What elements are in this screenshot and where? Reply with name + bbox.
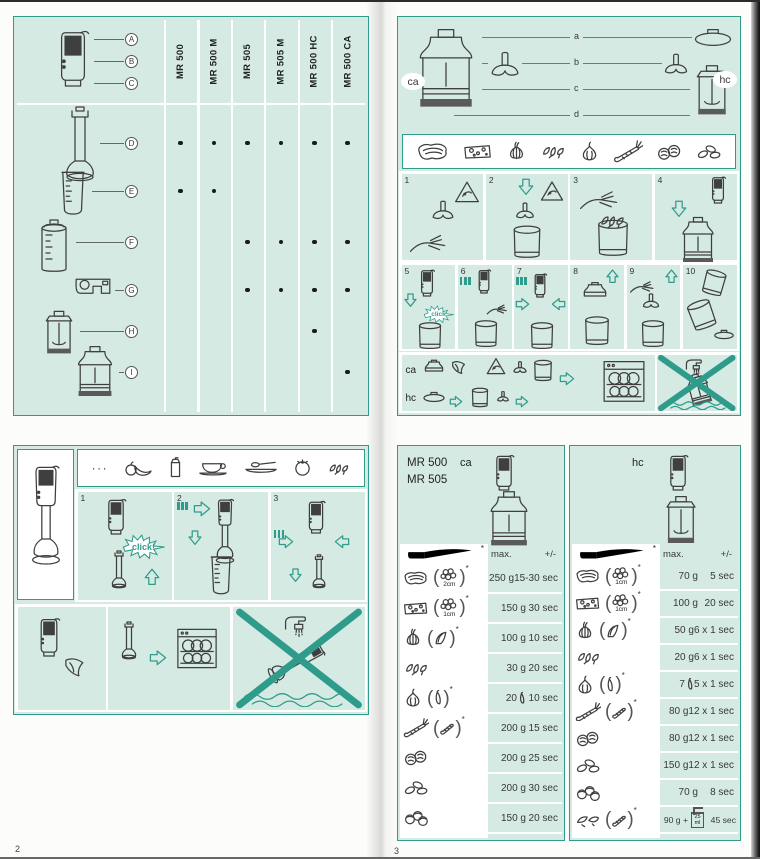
- processing-table-hc: hc * max. +/- (1cm)*70 g5 sec(1cm)*100 g…: [569, 445, 741, 841]
- compatibility-dot: [245, 240, 250, 245]
- cheese-icon: [463, 142, 493, 161]
- arrow-icon: [515, 395, 528, 407]
- table-header-row: * max. +/-: [400, 544, 562, 564]
- amount-value: 150 g: [488, 813, 526, 824]
- prep-hint: (1cm)*: [605, 594, 641, 613]
- compatibility-dot: [345, 240, 350, 245]
- garlic-icon: [575, 675, 595, 695]
- model-name: MR 500: [175, 43, 186, 78]
- part-label-F: F: [125, 236, 138, 249]
- prep-body: [439, 720, 455, 736]
- model-header-mr-505: MR 505: [231, 23, 264, 99]
- arrow-icon: [671, 200, 687, 218]
- assembly-step-4: 4: [655, 174, 737, 260]
- prohibited-cross-icon: [233, 607, 365, 710]
- ca-attachment-label: ca: [401, 73, 425, 90]
- click-callout: click: [422, 305, 456, 324]
- callout-line: [94, 83, 124, 84]
- time-value: 20 sec: [698, 598, 738, 609]
- assembly-steps-row-2: 5 click 6 7 8 9 10: [399, 262, 739, 351]
- callout-line: [94, 39, 124, 40]
- manual-spread: MR 500MR 500 MMR 505MR 505 MMR 500 HCMR …: [0, 0, 760, 859]
- clove-icon: [433, 690, 443, 706]
- hazelnuts-icon: [403, 809, 429, 826]
- prep-body: 1cm: [611, 567, 631, 586]
- blade-icon: [662, 53, 690, 76]
- arrow-icon: [149, 649, 167, 665]
- blade-icon: [488, 51, 522, 79]
- cubes-icon: [611, 594, 631, 607]
- compatibility-panel: MR 500MR 500 MMR 505MR 505 MMR 500 HCMR …: [13, 16, 369, 416]
- food-cell: [572, 780, 660, 805]
- table-row: ()*2010 sec: [400, 684, 562, 714]
- callout-line: [80, 331, 124, 332]
- onion-icon: [403, 628, 423, 648]
- value-cell: 150 g30 sec: [488, 594, 562, 622]
- cleaning-row: ca hc: [399, 352, 739, 413]
- part-line-c: c: [454, 89, 692, 90]
- amount-text: 20: [506, 693, 517, 704]
- assembly-panel: a b c d ca hc 1 2 3 4 5 click 6 7 8 9 10: [397, 16, 741, 416]
- value-cell: 100 g20 sec: [660, 591, 738, 616]
- compatibility-dot: [345, 370, 350, 375]
- part-label-H: H: [125, 325, 138, 338]
- part-label-D: D: [125, 137, 138, 150]
- tomato-icon: [293, 459, 312, 476]
- blender-foods-strip: ···: [77, 449, 365, 487]
- amount-value: 90 g +25ml: [660, 812, 706, 828]
- amount-text: 20 g: [675, 652, 694, 663]
- asterisk: *: [634, 698, 637, 707]
- time-value: 20 sec: [526, 663, 562, 674]
- amount-value: 50 g: [656, 625, 694, 636]
- amount-value: 100 g: [660, 598, 698, 609]
- onion-icon: [575, 621, 595, 641]
- assembly-step-2: 2: [486, 174, 568, 260]
- amount-value: 200 g: [488, 723, 526, 734]
- garlic-icon: [403, 688, 423, 708]
- value-cell: 70 g5 sec: [660, 564, 738, 589]
- asterisk: *: [450, 685, 453, 694]
- prep-body: [433, 690, 443, 706]
- amount-text: 200 g: [501, 783, 526, 794]
- compatibility-dot: [245, 288, 250, 293]
- bowl-icon: [510, 224, 544, 261]
- part-label-G: G: [125, 284, 138, 297]
- carrot-cut-icon: [439, 720, 455, 736]
- time-value: 5 sec: [698, 571, 738, 582]
- bowl-icon: [532, 359, 554, 383]
- arrow-icon: [449, 395, 462, 407]
- value-cell: 90 g +25ml45 sec: [660, 807, 738, 832]
- time-value: 20 sec: [526, 813, 562, 824]
- time-value: 25 sec: [526, 753, 562, 764]
- model-header-mr-500-m: MR 500 M: [197, 23, 230, 99]
- callout-line: [92, 191, 124, 192]
- part-label-I: I: [125, 366, 138, 379]
- prep-body: 1cm: [439, 598, 459, 617]
- walnuts-icon: [403, 749, 429, 766]
- time-value: 15-30 sec: [514, 573, 562, 584]
- walnuts-icon: [575, 730, 601, 747]
- step-number: 9: [630, 266, 635, 276]
- blade-icon: [430, 200, 456, 222]
- blade-icon: [641, 293, 661, 310]
- motor-icon: [305, 500, 327, 535]
- prep-hint: (1cm)*: [433, 598, 469, 617]
- amount-value: 150 g: [650, 760, 688, 771]
- beaker-icon: [206, 554, 236, 596]
- click-label: click: [422, 305, 456, 324]
- clove-icon: [605, 677, 615, 693]
- tolerance-header: +/-: [530, 549, 562, 560]
- arrow-icon: [404, 293, 417, 307]
- prep-body: [611, 704, 627, 720]
- table-row: 150 g20 sec: [400, 804, 562, 834]
- prep-hint: ()*: [427, 629, 459, 648]
- chopper-ca-icon: [410, 27, 482, 114]
- amount-text: 150 g: [663, 760, 688, 771]
- prep-body: 2cm: [439, 568, 459, 587]
- motor-icon: [666, 454, 690, 492]
- tolerance-header: +/-: [702, 549, 738, 560]
- food-cell: ()*: [400, 684, 488, 712]
- assembly-step-10: 10: [683, 265, 737, 349]
- value-cell: 2010 sec: [488, 684, 562, 712]
- part-line-d: d: [454, 115, 692, 116]
- time-value: 5 x 1 sec: [694, 679, 738, 690]
- assembly-step-5: 5 click: [402, 265, 456, 349]
- part-label-E: E: [125, 185, 138, 198]
- bowl-icon: [698, 266, 730, 300]
- bowl-icon: [416, 321, 444, 351]
- value-cell: 50 g6 x 1 sec: [656, 618, 738, 643]
- compatibility-dot: [312, 141, 317, 146]
- asterisk: *: [456, 625, 459, 634]
- asterisk: *: [466, 564, 469, 573]
- compatibility-dot: [279, 141, 284, 146]
- time-value: 12 x 1 sec: [688, 733, 738, 744]
- blender-cleaning-row: [15, 604, 367, 712]
- carrot-cut-icon: [611, 812, 627, 828]
- prep-hint: (1cm)*: [605, 567, 641, 586]
- asterisk: *: [638, 590, 641, 599]
- compatibility-dot: [345, 288, 350, 293]
- amount-text: 250 g: [489, 573, 514, 584]
- shaft-icon: [311, 554, 327, 590]
- processing-table-ca: MR 500 MR 505 ca * max. +/- (2cm)*250 g1…: [397, 445, 565, 841]
- value-cell: 80 g12 x 1 sec: [650, 699, 738, 724]
- motor-icon: [418, 269, 436, 298]
- hc-rows: (1cm)*70 g5 sec(1cm)*100 g20 sec()*50 g6…: [572, 564, 738, 834]
- cubes-icon: [611, 567, 631, 580]
- model-name: MR 505 M: [275, 38, 286, 84]
- food-cell: ()*: [572, 699, 650, 724]
- motor-icon: [532, 273, 548, 299]
- prep-size-label: 1cm: [443, 611, 455, 618]
- cloth-icon: [62, 655, 88, 678]
- step-number: 5: [405, 266, 410, 276]
- click-callout: click!: [120, 534, 168, 560]
- hand-icon: [578, 184, 620, 212]
- food-cell: (1cm)*: [572, 591, 660, 616]
- food-cell: ()*: [572, 618, 656, 643]
- amount-text: 80 g: [669, 706, 688, 717]
- food-cell: [400, 744, 488, 772]
- value-cell: 150 g20 sec: [488, 804, 562, 832]
- lid-flat-icon: [692, 27, 734, 48]
- usage-step-3: 3: [271, 492, 365, 600]
- quarter-icon: [605, 623, 621, 639]
- speed-marks: [177, 502, 188, 510]
- model-name: MR 500 HC: [309, 35, 320, 87]
- speed-marks: [516, 277, 527, 285]
- fruit-icon: [123, 458, 153, 478]
- beaker-icon: [56, 169, 90, 217]
- hc-column-label: hc: [632, 457, 644, 469]
- food-cell: ()*: [572, 807, 660, 832]
- asterisk: *: [466, 594, 469, 603]
- hc-attachment-label: hc: [713, 71, 737, 88]
- amount-text: 150 g: [501, 603, 526, 614]
- hc-label: hc: [406, 393, 417, 404]
- carrot-icon: [403, 718, 429, 738]
- ellipsis: ···: [92, 461, 109, 475]
- time-value: 12 x 1 sec: [688, 760, 738, 771]
- step-number: 4: [658, 175, 663, 185]
- asterisk: *: [462, 715, 465, 724]
- herbs-icon: [540, 143, 566, 160]
- time-value: 12 x 1 sec: [688, 706, 738, 717]
- motor-icon: [104, 498, 128, 536]
- prep-body: [433, 630, 449, 646]
- page-edge: [751, 2, 760, 857]
- step-number: 3: [573, 175, 578, 185]
- step-number: 3: [274, 493, 279, 503]
- carrot-icon: [613, 140, 643, 163]
- herbs-icon: [327, 461, 350, 476]
- step-number: 1: [405, 175, 410, 185]
- food-cell: (2cm)*: [400, 564, 476, 592]
- compatibility-dot: [279, 240, 284, 245]
- no-rinse-warning: [233, 607, 365, 710]
- asterisk: *: [622, 671, 625, 680]
- table-row: 70 g8 sec: [572, 780, 738, 807]
- meat-icon: [575, 568, 601, 584]
- compatibility-dot: [178, 189, 183, 194]
- food-cell: ()*: [400, 714, 488, 742]
- value-cell: 75 x 1 sec: [656, 672, 738, 697]
- assembly-step-8: 8: [570, 265, 624, 349]
- table-row: 20 g6 x 1 sec: [572, 645, 738, 672]
- amount-text: 100 g: [673, 598, 698, 609]
- step-number: 8: [573, 266, 578, 276]
- value-cell: 200 g25 sec: [488, 744, 562, 772]
- part-letter-d: d: [570, 109, 583, 119]
- amount-text: 90 g +: [664, 815, 688, 825]
- bowl-icon: [594, 218, 632, 259]
- amount-text: 7: [679, 679, 685, 690]
- carrot-icon: [575, 702, 601, 722]
- table-row: ()*200 g15 sec: [400, 714, 562, 744]
- carrot-cut-icon: [611, 704, 627, 720]
- page-fold: [366, 2, 398, 857]
- warning-icon: [486, 357, 506, 375]
- table-row: (1cm)*100 g20 sec: [572, 591, 738, 618]
- cheese-icon: [575, 595, 601, 611]
- arrow-icon: [188, 530, 202, 545]
- food-cell: [572, 753, 650, 778]
- value-cell: 30 g20 sec: [488, 654, 562, 682]
- amount-value: 100 g: [488, 633, 526, 644]
- amount-text: 150 g: [501, 813, 526, 824]
- prep-hint: ()*: [427, 689, 453, 708]
- prep-body: [605, 677, 615, 693]
- part-label-A: A: [125, 33, 138, 46]
- ca-rows: (2cm)*250 g15-30 sec(1cm)*150 g30 sec()*…: [400, 564, 562, 834]
- max-header: max.: [660, 549, 702, 560]
- prep-hint: ()*: [605, 810, 637, 829]
- step-number: 10: [686, 266, 695, 276]
- asterisk: *: [653, 543, 656, 553]
- callout-line: [115, 290, 124, 291]
- callout-line: [94, 61, 124, 62]
- chopper-cleaning-scene: ca hc: [402, 355, 655, 411]
- cubes-icon: [439, 598, 459, 611]
- usage-step-1: 1 click!: [78, 492, 172, 600]
- carton-icon: [169, 457, 182, 478]
- amount-text: 70 g: [679, 571, 698, 582]
- step-number: 6: [461, 266, 466, 276]
- table-row: ()*75 x 1 sec: [572, 672, 738, 699]
- model-name: MR 500 M: [209, 38, 220, 84]
- chopper-hc-icon: [660, 494, 702, 547]
- arrow-icon: [551, 297, 565, 310]
- clove-icon: [686, 678, 694, 691]
- value-cell: 70 g8 sec: [660, 780, 738, 805]
- amount-value: 200 g: [488, 783, 526, 794]
- part-letter-c: c: [570, 83, 583, 93]
- table-row: ()*100 g10 sec: [400, 624, 562, 654]
- blade-icon: [514, 202, 536, 220]
- max-header: max.: [488, 549, 530, 560]
- time-value: 10 sec: [526, 693, 562, 704]
- cupsaucer-icon: [197, 460, 229, 477]
- amount-value: 20 g: [656, 652, 694, 663]
- time-value: 30 sec: [526, 603, 562, 614]
- value-cell: 80 g12 x 1 sec: [650, 726, 738, 751]
- almonds-icon: [696, 143, 722, 160]
- arrow-icon: [515, 297, 529, 310]
- usage-steps-row: 1 click! 2 3: [75, 489, 367, 602]
- quarter-icon: [433, 630, 449, 646]
- callout-line: [119, 372, 124, 373]
- arrow-icon: [289, 568, 302, 582]
- cubes-icon: [439, 568, 459, 581]
- model-header-mr-500: MR 500: [164, 23, 197, 99]
- clove-icon: [518, 692, 526, 705]
- wipe-motor-scene: [18, 607, 106, 710]
- bracket-icon: [72, 275, 114, 300]
- arrow-icon: [665, 269, 678, 283]
- amount-value: 80 g: [650, 706, 688, 717]
- assembly-step-6: 6: [458, 265, 512, 349]
- table-row: 200 g30 sec: [400, 774, 562, 804]
- dishwasher-icon: [598, 357, 650, 406]
- ca-label: ca: [406, 365, 417, 376]
- callout-line: [76, 242, 124, 243]
- amount-text: 80 g: [669, 733, 688, 744]
- no-rinse-warning: [657, 355, 737, 411]
- cup-icon: [34, 217, 74, 277]
- motor-icon: [476, 269, 492, 295]
- time-value: 45 sec: [706, 815, 738, 825]
- table-row: (1cm)*150 g30 sec: [400, 594, 562, 624]
- cloth-icon: [450, 359, 468, 375]
- lid-flat-icon: [713, 329, 735, 340]
- motor-icon: [492, 454, 516, 492]
- table-row: ()*90 g +25ml45 sec: [572, 807, 738, 834]
- asterisk: *: [638, 563, 641, 572]
- amount-value: 200 g: [488, 753, 526, 764]
- page-number-left: 2: [15, 844, 20, 854]
- shaft-icon: [120, 621, 138, 661]
- chopper-ca-icon: [677, 216, 719, 267]
- lid-flat-icon: [422, 391, 446, 403]
- food-cell: (1cm)*: [400, 594, 488, 622]
- model-header-mr-500-hc: MR 500 HC: [298, 23, 331, 99]
- table-row: 200 g25 sec: [400, 744, 562, 774]
- amount-text: 100 g: [501, 633, 526, 644]
- food-cell: [572, 645, 656, 670]
- compatibility-dot: [345, 141, 350, 146]
- table-row: ()*80 g12 x 1 sec: [572, 699, 738, 726]
- table-row: 30 g20 sec: [400, 654, 562, 684]
- blade-icon: [496, 391, 510, 403]
- amount-text: 50 g: [675, 625, 694, 636]
- assembly-steps-row-1: 1 2 3 4: [399, 171, 739, 262]
- assembly-step-9: 9: [627, 265, 681, 349]
- click-label: click!: [120, 534, 168, 560]
- food-cell: [400, 774, 488, 802]
- blender-icon: [26, 464, 66, 571]
- value-cell: 250 g15-30 sec: [476, 564, 562, 592]
- food-cell: ()*: [572, 672, 656, 697]
- assembly-step-3: 3: [570, 174, 652, 260]
- meat-icon: [416, 141, 450, 162]
- model-name: MR 500 CA: [342, 35, 353, 87]
- garlic-icon: [579, 141, 600, 162]
- table-header-row: * max. +/-: [572, 544, 738, 564]
- value-cell: 200 g15 sec: [488, 714, 562, 742]
- hand-icon: [629, 277, 655, 294]
- amount-text: 200 g: [501, 753, 526, 764]
- usage-panel: ··· 1 click! 2 3: [13, 445, 369, 715]
- part-line-a: a: [454, 37, 692, 38]
- amount-value: 70 g: [660, 571, 698, 582]
- model-header-mr-500-ca: MR 500 CA: [331, 23, 364, 99]
- callout-line: [100, 143, 124, 144]
- hand-icon: [486, 301, 508, 316]
- bowl-icon: [472, 319, 500, 349]
- blender-cleaning-scenes: [18, 607, 230, 710]
- motor-icon: [54, 29, 92, 90]
- chopper-foods-strip: [402, 134, 736, 169]
- warning-icon: [454, 180, 480, 204]
- arrow-icon: [334, 534, 349, 548]
- prep-body: [611, 812, 627, 828]
- prep-hint: ()*: [599, 621, 631, 640]
